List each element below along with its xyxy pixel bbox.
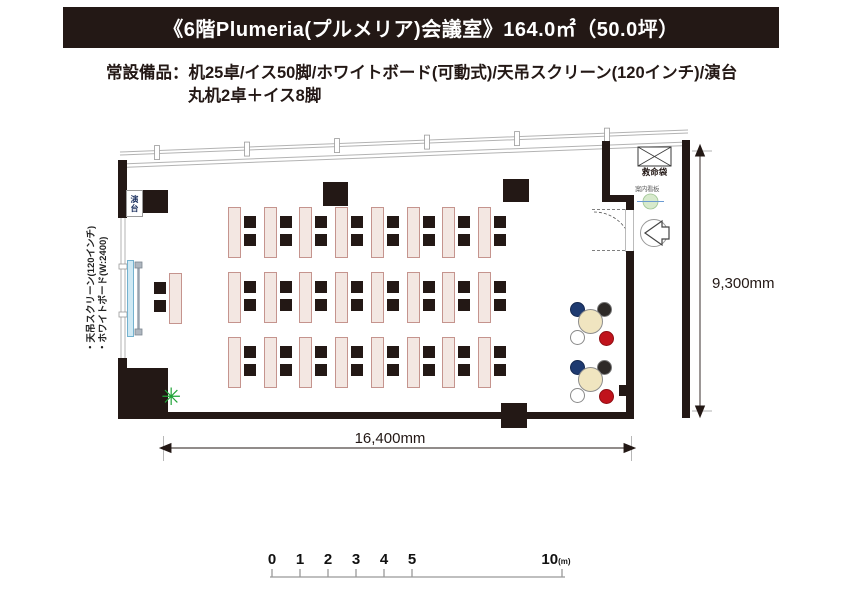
desk — [371, 207, 384, 258]
round-chair-white — [570, 388, 585, 403]
ceiling-screen — [127, 260, 134, 337]
window-post — [335, 139, 340, 153]
equipment-note: 常設備品：机25卓/イス50脚/ホワイトボード(可動式)/天吊スクリーン(120… — [106, 62, 737, 108]
desk — [442, 337, 455, 388]
chair — [280, 299, 292, 311]
desk — [335, 272, 348, 323]
chair — [494, 234, 506, 246]
pillar — [503, 179, 529, 202]
chair — [351, 346, 363, 358]
chair — [494, 346, 506, 358]
chair — [351, 364, 363, 376]
side-notes: ・天吊スクリーン(120インチ) ・ホワイトボード(W:2400) — [86, 216, 110, 352]
scale-tick-label: 1 — [296, 551, 304, 568]
chair — [315, 234, 327, 246]
chair — [423, 299, 435, 311]
chair — [280, 281, 292, 293]
chair — [458, 234, 470, 246]
chair — [494, 281, 506, 293]
chair — [280, 364, 292, 376]
dimension-line-height — [692, 145, 712, 417]
desk — [335, 337, 348, 388]
desk — [371, 272, 384, 323]
whiteboard-note: ・ホワイトボード(W:2400) — [98, 216, 110, 352]
round-chair-red — [599, 389, 614, 404]
chair — [280, 234, 292, 246]
info-sign-label: 案内看板 — [635, 183, 659, 193]
floorplan-page: 《6階Plumeria(プルメリア)会議室》164.0㎡（50.0坪） 常設備品… — [0, 0, 842, 595]
round-table — [578, 309, 603, 334]
chair — [315, 299, 327, 311]
scale-tick-label: 2 — [324, 551, 332, 568]
desk — [478, 207, 491, 258]
desk — [264, 207, 277, 258]
lectern: 演台 — [126, 190, 143, 217]
window-post — [155, 146, 160, 160]
page-title: 《6階Plumeria(プルメリア)会議室》164.0㎡（50.0坪） — [163, 13, 678, 42]
desk — [407, 272, 420, 323]
scale-tick-label: 3 — [352, 551, 360, 568]
title-bar: 《6階Plumeria(プルメリア)会議室》164.0㎡（50.0坪） — [63, 7, 779, 48]
chair — [494, 216, 506, 228]
chair — [315, 364, 327, 376]
chair — [423, 364, 435, 376]
window-post — [425, 135, 430, 149]
chair — [458, 299, 470, 311]
wall-segment — [626, 197, 634, 210]
window-post — [515, 132, 520, 146]
round-table — [578, 367, 603, 392]
chair — [423, 281, 435, 293]
chair — [423, 216, 435, 228]
exit-arrow-symbol — [641, 220, 670, 247]
left-window-wall — [119, 218, 127, 358]
desk — [335, 207, 348, 258]
chair — [387, 234, 399, 246]
equipment-line1: 常設備品：机25卓/イス50脚/ホワイトボード(可動式)/天吊スクリーン(120… — [106, 62, 737, 85]
window-post — [245, 142, 250, 156]
whiteboard — [135, 262, 142, 335]
scale-unit: (m) — [558, 557, 570, 566]
scale-tick-label: 4 — [380, 551, 388, 568]
chair — [244, 299, 256, 311]
width-dimension-label: 16,400mm — [355, 430, 426, 447]
lectern-label: 演台 — [129, 195, 140, 213]
desk — [407, 207, 420, 258]
chair — [351, 234, 363, 246]
scale-tick-label: 0 — [268, 551, 276, 568]
chair — [458, 364, 470, 376]
head-desk — [169, 273, 182, 324]
chair — [244, 281, 256, 293]
wall-segment — [118, 412, 634, 419]
desk — [478, 337, 491, 388]
desk — [478, 272, 491, 323]
screen-note: ・天吊スクリーン(120インチ) — [86, 216, 98, 352]
chair — [315, 346, 327, 358]
desk — [407, 337, 420, 388]
desk — [299, 337, 312, 388]
chair — [458, 216, 470, 228]
desk — [371, 337, 384, 388]
rescue-bag-box — [638, 147, 671, 166]
chair — [387, 346, 399, 358]
wall-segment — [619, 385, 627, 396]
chair — [315, 281, 327, 293]
height-dimension-label: 9,300mm — [712, 275, 775, 292]
desk — [228, 272, 241, 323]
chair — [244, 234, 256, 246]
info-sign-marker — [637, 194, 664, 209]
equipment-line2: 丸机2卓＋イス8脚 — [106, 85, 737, 108]
door-panel — [626, 210, 634, 252]
wall-segment — [626, 251, 634, 419]
chair — [387, 299, 399, 311]
chair — [387, 216, 399, 228]
chair — [351, 216, 363, 228]
wall-segment — [682, 140, 690, 418]
round-chair-white — [570, 330, 585, 345]
desk — [299, 272, 312, 323]
desk — [264, 337, 277, 388]
chair — [280, 216, 292, 228]
chair — [154, 282, 166, 294]
desk — [442, 272, 455, 323]
chair — [244, 216, 256, 228]
desk — [228, 337, 241, 388]
rescue-bag-label: 救命袋 — [637, 166, 672, 178]
desk — [264, 272, 277, 323]
chair — [280, 346, 292, 358]
chair — [154, 300, 166, 312]
chair — [244, 346, 256, 358]
chair — [423, 346, 435, 358]
chair — [387, 281, 399, 293]
chair — [494, 364, 506, 376]
scale-bar — [270, 569, 565, 577]
chair — [387, 364, 399, 376]
chair — [315, 216, 327, 228]
chair — [458, 346, 470, 358]
chair — [458, 281, 470, 293]
chair — [244, 364, 256, 376]
wall-segment — [602, 141, 610, 198]
round-chair-red — [599, 331, 614, 346]
chair — [351, 281, 363, 293]
scale-tick-label: 10(m) — [541, 551, 570, 568]
chair — [494, 299, 506, 311]
window-mullions — [155, 128, 610, 159]
scale-tick-label: 5 — [408, 551, 416, 568]
plant-icon: ✳ — [161, 386, 181, 410]
pillar — [143, 190, 168, 213]
pillar — [501, 403, 527, 428]
desk — [228, 207, 241, 258]
chair — [351, 299, 363, 311]
desk — [442, 207, 455, 258]
desk — [299, 207, 312, 258]
pillar — [323, 182, 348, 206]
chair — [423, 234, 435, 246]
